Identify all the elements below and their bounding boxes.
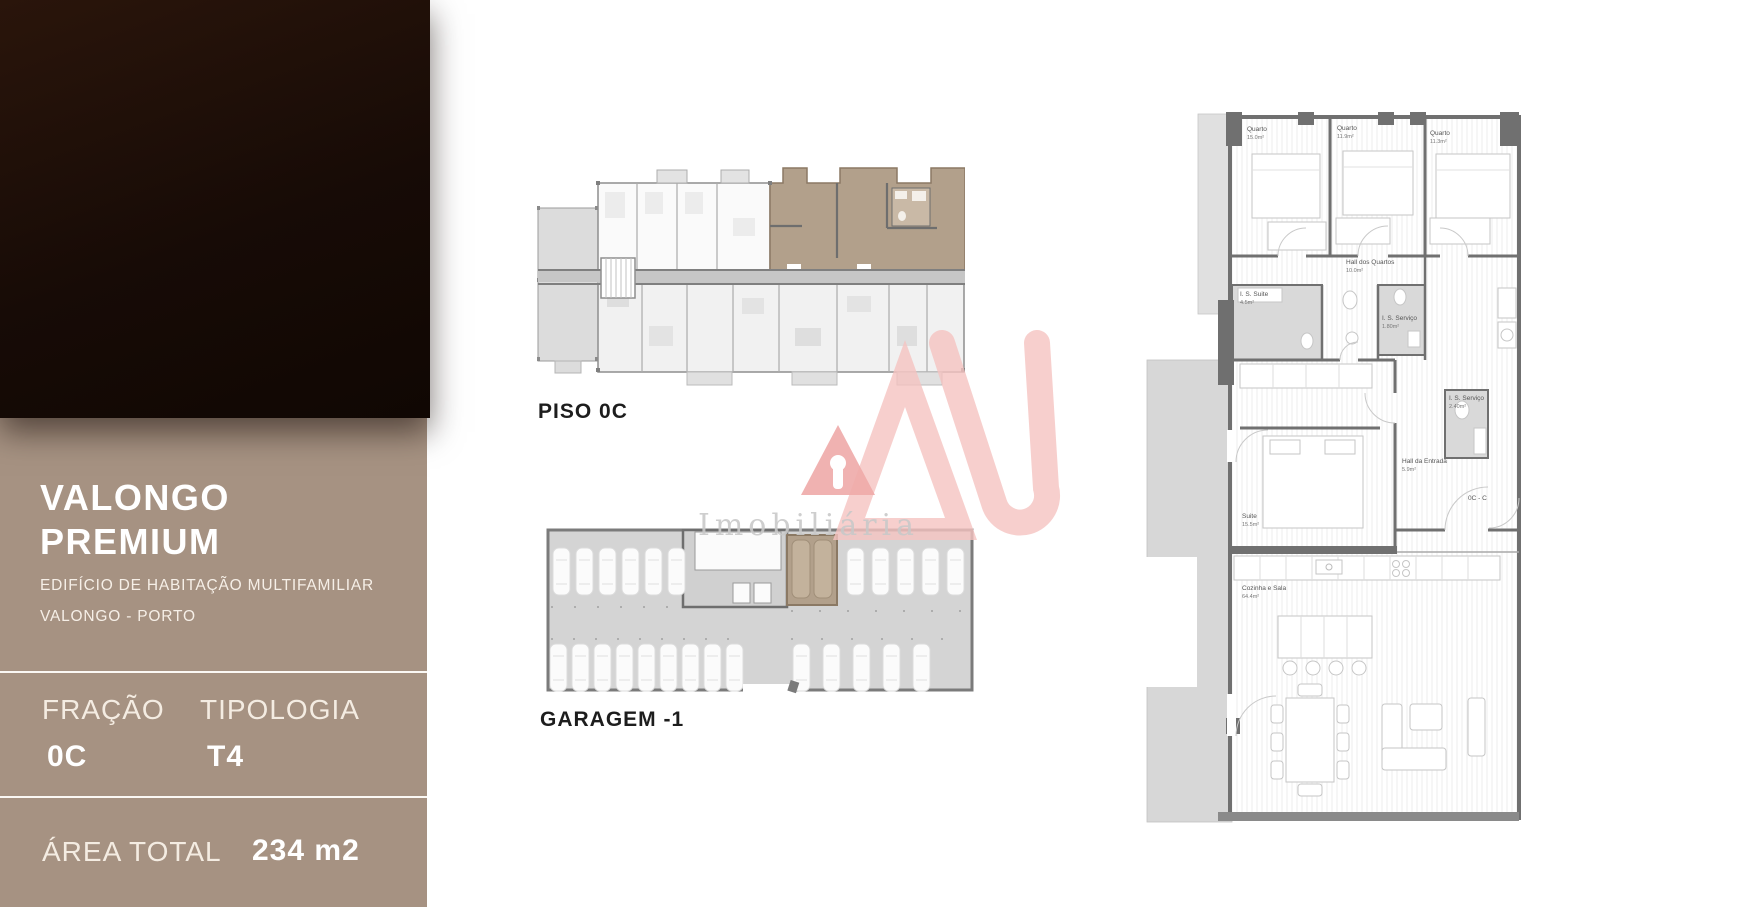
- label-hall-entrada: Hall da Entrada: [1402, 458, 1447, 465]
- label-is-servico-1: I. S. Serviço: [1382, 315, 1417, 322]
- label-quarto2: Quarto: [1337, 125, 1357, 132]
- label-entrada-tag: 0C - C: [1468, 495, 1487, 502]
- divider-bottom: [0, 796, 427, 798]
- cover-photo-dark-block: [0, 0, 430, 418]
- terraces: [1144, 114, 1232, 822]
- project-title-line1: VALONGO: [40, 476, 230, 520]
- logo-keyhole-triangle: [801, 425, 875, 495]
- upper-units: [598, 170, 770, 270]
- label-quarto2-area: 11.9m²: [1337, 134, 1354, 140]
- highlighted-parking-spots: [787, 535, 837, 605]
- highlighted-unit-0c: [770, 168, 965, 270]
- garage-floor-plan: [545, 523, 975, 698]
- project-subtitle-line2: VALONGO - PORTO: [40, 601, 374, 632]
- tipologia-label: TIPOLOGIA: [200, 694, 360, 726]
- label-quarto3-area: 11.3m²: [1430, 139, 1447, 145]
- info-sidebar: VALONGO PREMIUM EDIFÍCIO DE HABITAÇÃO MU…: [0, 418, 427, 907]
- label-hall-entrada-area: 5.9m²: [1402, 467, 1416, 473]
- label-is-servico-2: I. S. Serviço: [1449, 395, 1484, 402]
- label-is-servico-2-area: 2.40m²: [1449, 404, 1466, 410]
- label-quarto3: Quarto: [1430, 130, 1450, 137]
- garagem-plan-title: GARAGEM -1: [540, 708, 684, 732]
- apartment-floor-plan: Quarto 15.0m² Quarto 11.9m² Quarto 11.3m…: [1100, 98, 1530, 833]
- piso-plan-title: PISO 0C: [538, 400, 628, 424]
- label-is-servico-1-area: 1.80m²: [1382, 324, 1399, 330]
- building-floor-plan-piso0c: [537, 158, 965, 398]
- garage-core-room: [683, 530, 787, 607]
- label-hall-quartos-area: 10.0m²: [1346, 268, 1363, 274]
- fracao-label: FRAÇÃO: [42, 694, 165, 726]
- lower-units: [598, 284, 964, 385]
- label-is-suite: I. S. Suite: [1240, 291, 1269, 298]
- divider-top: [0, 671, 427, 673]
- label-cozinha-sala: Cozinha e Sala: [1242, 585, 1286, 592]
- project-subtitle-line1: EDIFÍCIO DE HABITAÇÃO MULTIFAMILIAR: [40, 570, 374, 601]
- project-subtitle: EDIFÍCIO DE HABITAÇÃO MULTIFAMILIAR VALO…: [40, 570, 374, 632]
- area-total-label: ÁREA TOTAL: [42, 836, 222, 868]
- label-quarto1-area: 15.0m²: [1247, 135, 1264, 141]
- label-suite: Suite: [1242, 513, 1257, 520]
- label-is-suite-area: 4.5m²: [1240, 300, 1254, 306]
- project-title: VALONGO PREMIUM: [40, 476, 230, 564]
- label-cozinha-sala-area: 64.4m²: [1242, 594, 1259, 600]
- project-title-line2: PREMIUM: [40, 520, 230, 564]
- tipologia-value: T4: [207, 740, 244, 774]
- fracao-value: 0C: [47, 740, 87, 774]
- annex-block: [537, 206, 599, 373]
- label-suite-area: 15.5m²: [1242, 522, 1259, 528]
- area-total-value: 234 m2: [252, 834, 360, 868]
- label-hall-quartos: Hall dos Quartos: [1346, 259, 1395, 266]
- brochure-page: VALONGO PREMIUM EDIFÍCIO DE HABITAÇÃO MU…: [0, 0, 1749, 907]
- label-quarto1: Quarto: [1247, 126, 1267, 133]
